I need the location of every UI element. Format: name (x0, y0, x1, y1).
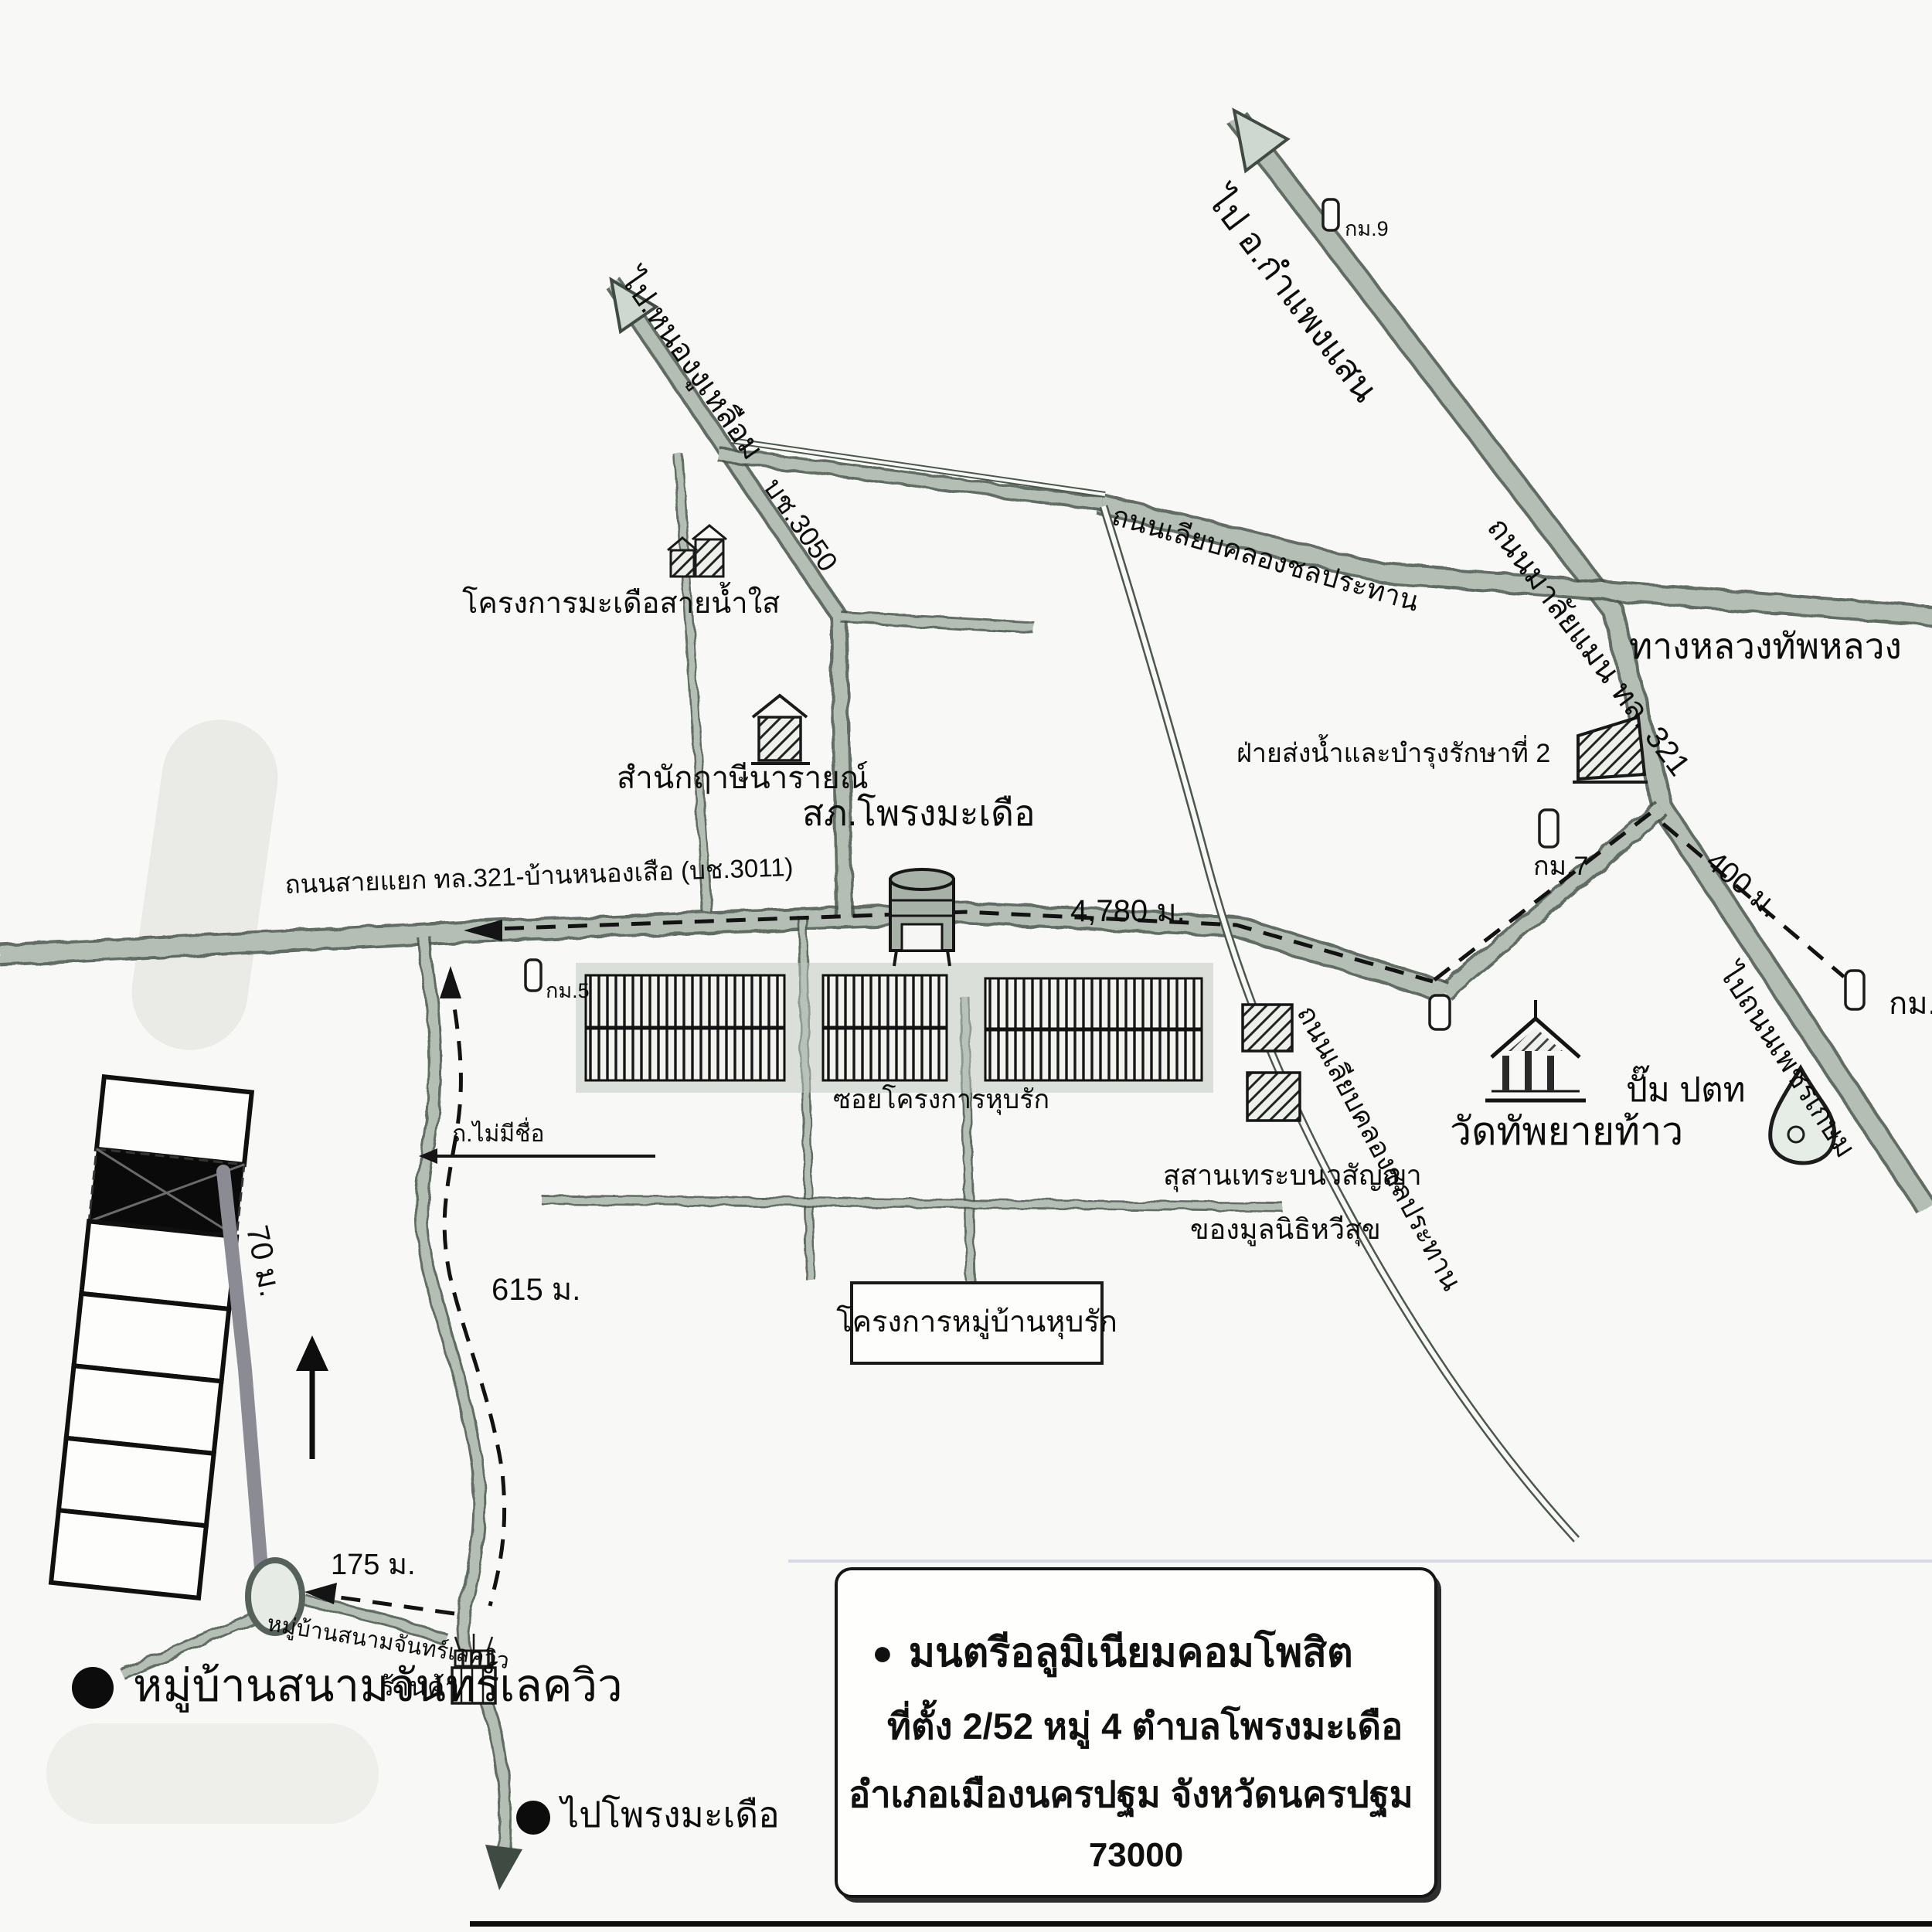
label-samnak: สำนักฤาษีนารายณ์ (617, 762, 869, 794)
label-km5: กม.5 (546, 980, 590, 1002)
info-company-name: มนตรีอลูมิเนียมคอมโพสิต (909, 1620, 1353, 1684)
label-wat: วัดทัพยายท้าว (1450, 1111, 1683, 1152)
housing-blocks (576, 963, 1213, 1093)
label-village-big: หมู่บ้านสนามจันทร์เลควิว (133, 1663, 623, 1710)
info-bullet: ● (872, 1631, 893, 1673)
label-madua-project: โครงการมะเดือสายน้ำใส (462, 589, 780, 620)
milestone-icon (1430, 995, 1450, 1029)
label-road-noname: ถ.ไม่มีชื่อ (452, 1122, 545, 1147)
km8-milestone-icon (1845, 971, 1864, 1009)
police-watertank-icon (890, 869, 954, 966)
label-road-thapluang: ทางหลวงทัพหลวง (1629, 628, 1902, 665)
scan-edge-line (470, 1921, 1932, 1927)
km9-milestone-icon (1323, 199, 1338, 230)
label-hubrak-project: โครงการหมู่บ้านหุบรัก (836, 1308, 1117, 1338)
building-icon (1243, 1005, 1292, 1051)
route-arrow-north (440, 966, 461, 998)
label-irrigation: ฝ่ายส่งน้ำและบำรุงรักษาที่ 2 (1236, 740, 1550, 768)
label-shop: ร้านค้า (380, 1674, 459, 1702)
label-soi-hubrak: ซอยโครงการหุบรัก (833, 1087, 1049, 1114)
phrongmadua-bullet (516, 1801, 550, 1835)
arrow-to-phrongmadua (485, 1845, 522, 1890)
plot-cell (51, 1510, 206, 1598)
hubrak-project-box: โครงการหมู่บ้านหุบรัก (850, 1281, 1104, 1365)
address-info-box: ● มนตรีอลูมิเนียมคอมโพสิต ที่ตั้ง 2/52 ห… (835, 1567, 1437, 1898)
label-cemetery-2: ของมูลนิธิหวีสุข (1190, 1215, 1381, 1244)
scan-line (788, 1560, 1932, 1563)
info-name-line: ● มนตรีอลูมิเนียมคอมโพสิต (872, 1620, 1353, 1684)
km5-milestone-icon (526, 960, 541, 991)
village-bullet (72, 1667, 114, 1709)
wat-icon (1485, 1000, 1586, 1100)
label-dist-175: 175 ม. (331, 1550, 416, 1581)
info-postal-code: 73000 (838, 1836, 1434, 1875)
building-icon (1247, 1073, 1300, 1121)
samnak-icon (751, 696, 810, 764)
label-to-phrongmadua: ไปโพรงมะเดือ (561, 1796, 780, 1833)
land-plot-stack (51, 1077, 252, 1597)
label-police: สภ.โพรงมะเดือ (802, 794, 1036, 832)
label-km7: กม.7 (1533, 853, 1588, 881)
label-ptt: ปั๊ม ปตท (1626, 1073, 1746, 1108)
label-dist-615: 615 ม. (492, 1274, 580, 1306)
madua-project-icon (668, 526, 726, 577)
info-address-line2: อำเภอเมืองนครปฐม จังหวัดนครปฐม (849, 1765, 1413, 1823)
scanned-location-map: ไป อ.กำแพงแสน กม.9 ถนนมาลัยแมน ทล. 321 ท… (0, 0, 1932, 1932)
label-dist-4780: 4,780 ม. (1070, 895, 1185, 927)
km7-milestone-icon (1539, 810, 1558, 847)
direction-arrow-up (296, 1335, 328, 1459)
label-cemetery-1: สุสานเทระบนวสัญญา (1163, 1161, 1422, 1190)
info-address-line1: ที่ตั้ง 2/52 หมู่ 4 ตำบลโพรงมะเดือ (887, 1697, 1403, 1755)
label-km9: กม.9 (1345, 218, 1389, 240)
label-km8: กม.8 (1889, 988, 1932, 1020)
